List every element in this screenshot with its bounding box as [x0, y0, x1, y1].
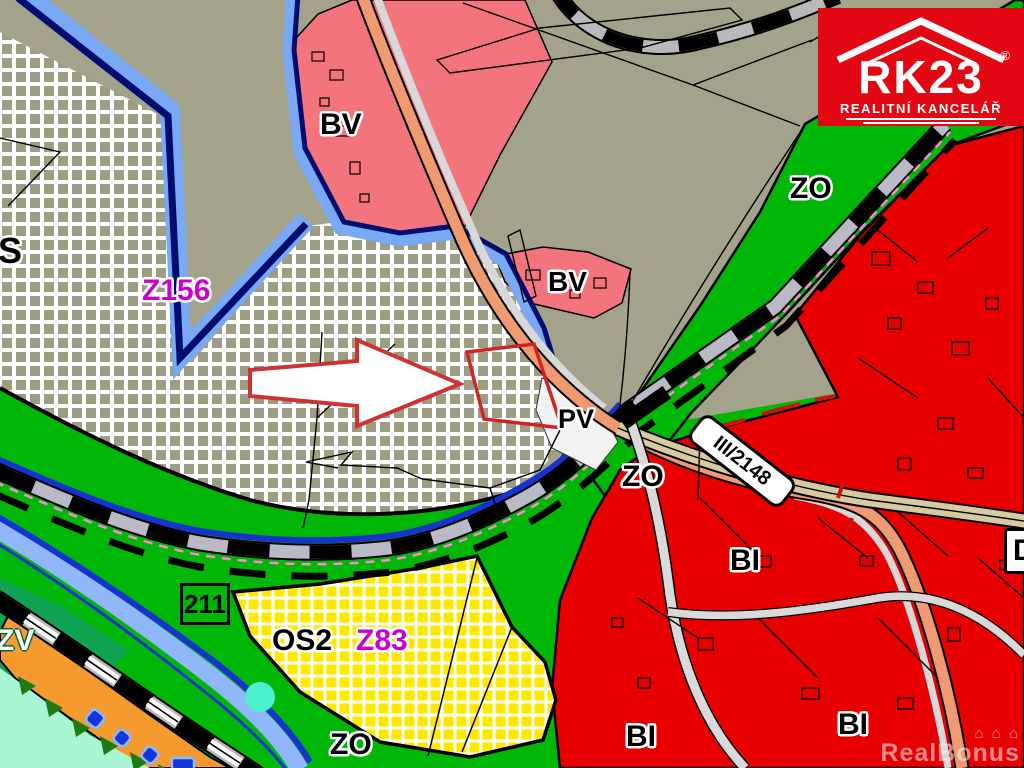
zone-label-bv-top: BV	[320, 110, 362, 140]
zone-label-d-box: D	[1004, 528, 1024, 574]
logo-roof-icon	[818, 8, 1024, 126]
zone-label-z156: Z156	[142, 276, 210, 306]
zone-label-z83: Z83	[356, 626, 408, 656]
zone-label-bi-bottom-right: BI	[838, 710, 868, 740]
cyan-marker-dot	[245, 682, 275, 712]
zone-label-os2: OS2	[272, 626, 332, 656]
zone-label-bi-center: BI	[730, 546, 760, 576]
zone-label-zo-topright: ZO	[790, 174, 832, 204]
zone-label-zo-center: ZO	[622, 462, 664, 492]
watermark-text: RealBonus	[880, 739, 1020, 767]
road-sign-211: 211	[180, 583, 230, 625]
zone-label-bi-bottom-left: BI	[626, 722, 656, 752]
rk23-logo: ® RK23 REALITNÍ KANCELÁŘ	[818, 8, 1024, 126]
zone-label-zv: ZV	[0, 626, 34, 656]
zone-label-zo-bottom: ZO	[330, 730, 372, 760]
registered-mark: ®	[1000, 48, 1010, 63]
zoning-map: S Z156 BV BV ZO ZO ZO PV OS2 Z83 BI BI B…	[0, 0, 1024, 768]
zone-label-s: S	[0, 233, 22, 269]
zone-label-pv: PV	[558, 406, 594, 433]
realbonus-watermark: ⌂ ⌂ ⌂ RealBonus	[880, 726, 1020, 766]
zone-label-bv-mid: BV	[548, 268, 587, 296]
